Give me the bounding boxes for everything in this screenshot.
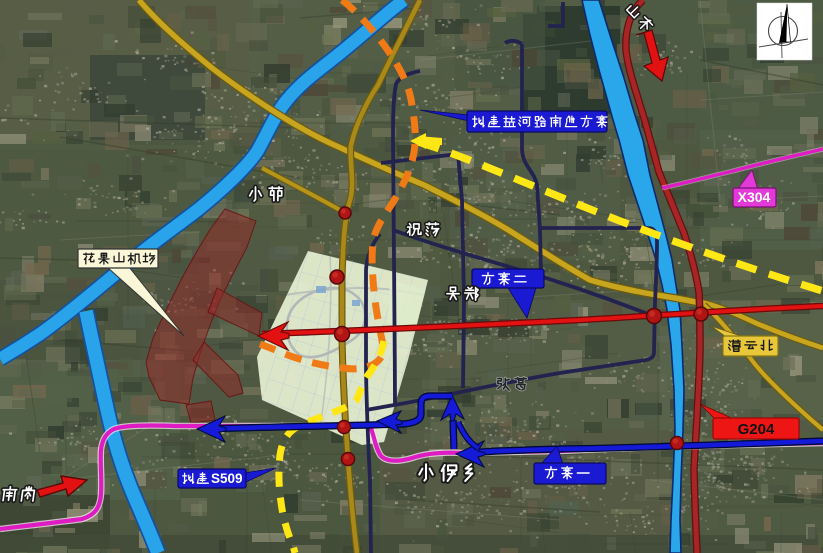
svg-text:S509: S509	[211, 471, 243, 486]
svg-text:G204: G204	[738, 421, 775, 438]
svg-text:X304: X304	[738, 189, 771, 205]
